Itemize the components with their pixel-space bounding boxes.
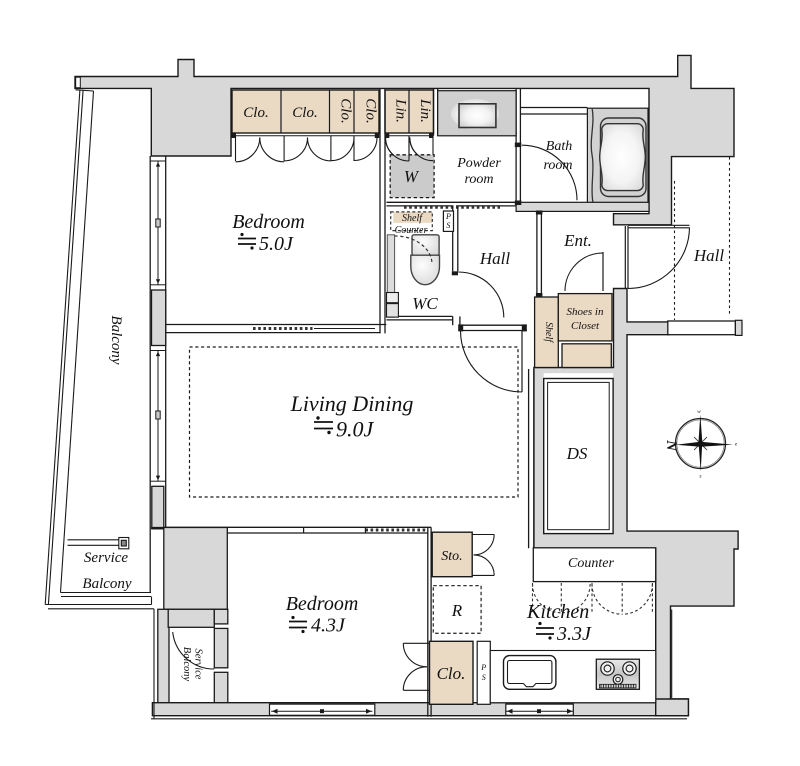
- svg-text:Bedroom: Bedroom: [286, 593, 359, 615]
- svg-text:S: S: [482, 673, 486, 682]
- svg-text:s: s: [699, 474, 701, 480]
- svg-text:9.0J: 9.0J: [336, 417, 375, 442]
- svg-text:P: P: [480, 663, 486, 672]
- svg-text:Sto.: Sto.: [441, 549, 462, 564]
- svg-text:Clo.: Clo.: [338, 98, 354, 123]
- svg-text:Hall: Hall: [479, 249, 511, 268]
- svg-text:Bath: Bath: [546, 139, 572, 154]
- svg-text:Powder: Powder: [456, 156, 501, 171]
- svg-text:Service: Service: [193, 649, 204, 680]
- svg-text:DS: DS: [566, 444, 588, 463]
- svg-text:Balcony: Balcony: [181, 647, 192, 682]
- svg-text:3.3J: 3.3J: [556, 623, 592, 645]
- svg-text:Lin.: Lin.: [417, 98, 433, 123]
- svg-text:S: S: [446, 221, 450, 230]
- svg-text:WC: WC: [412, 294, 438, 313]
- svg-text:room: room: [464, 172, 493, 187]
- svg-text:e: e: [735, 442, 738, 448]
- svg-text:Clo.: Clo.: [363, 98, 379, 123]
- svg-text:5.0J: 5.0J: [259, 233, 294, 255]
- svg-text:Service: Service: [84, 550, 128, 566]
- svg-text:4.3J: 4.3J: [311, 615, 346, 637]
- svg-text:Shelf: Shelf: [543, 322, 554, 343]
- svg-text:w: w: [697, 409, 701, 415]
- svg-text:Counter: Counter: [568, 556, 614, 571]
- svg-text:Balcony: Balcony: [82, 576, 131, 592]
- svg-text:Kitchen: Kitchen: [526, 601, 589, 623]
- svg-text:Counter: Counter: [395, 225, 428, 236]
- svg-text:Hall: Hall: [693, 246, 725, 265]
- svg-text:Clo.: Clo.: [243, 105, 268, 121]
- svg-text:R: R: [451, 601, 463, 620]
- svg-text:Lin.: Lin.: [393, 98, 409, 123]
- svg-text:room: room: [543, 158, 572, 173]
- svg-text:Bedroom: Bedroom: [232, 211, 305, 233]
- svg-text:Balcony: Balcony: [108, 315, 124, 364]
- svg-text:P: P: [445, 212, 451, 221]
- svg-text:Ent.: Ent.: [563, 231, 592, 250]
- svg-text:Living Dining: Living Dining: [290, 391, 414, 416]
- svg-text:W: W: [404, 167, 420, 186]
- svg-text:Clo.: Clo.: [437, 664, 466, 683]
- svg-text:Closet: Closet: [571, 320, 600, 332]
- svg-text:Shoes in: Shoes in: [567, 306, 604, 318]
- svg-text:Clo.: Clo.: [292, 105, 317, 121]
- svg-text:N: N: [663, 439, 679, 452]
- svg-text:Shelf: Shelf: [402, 213, 423, 224]
